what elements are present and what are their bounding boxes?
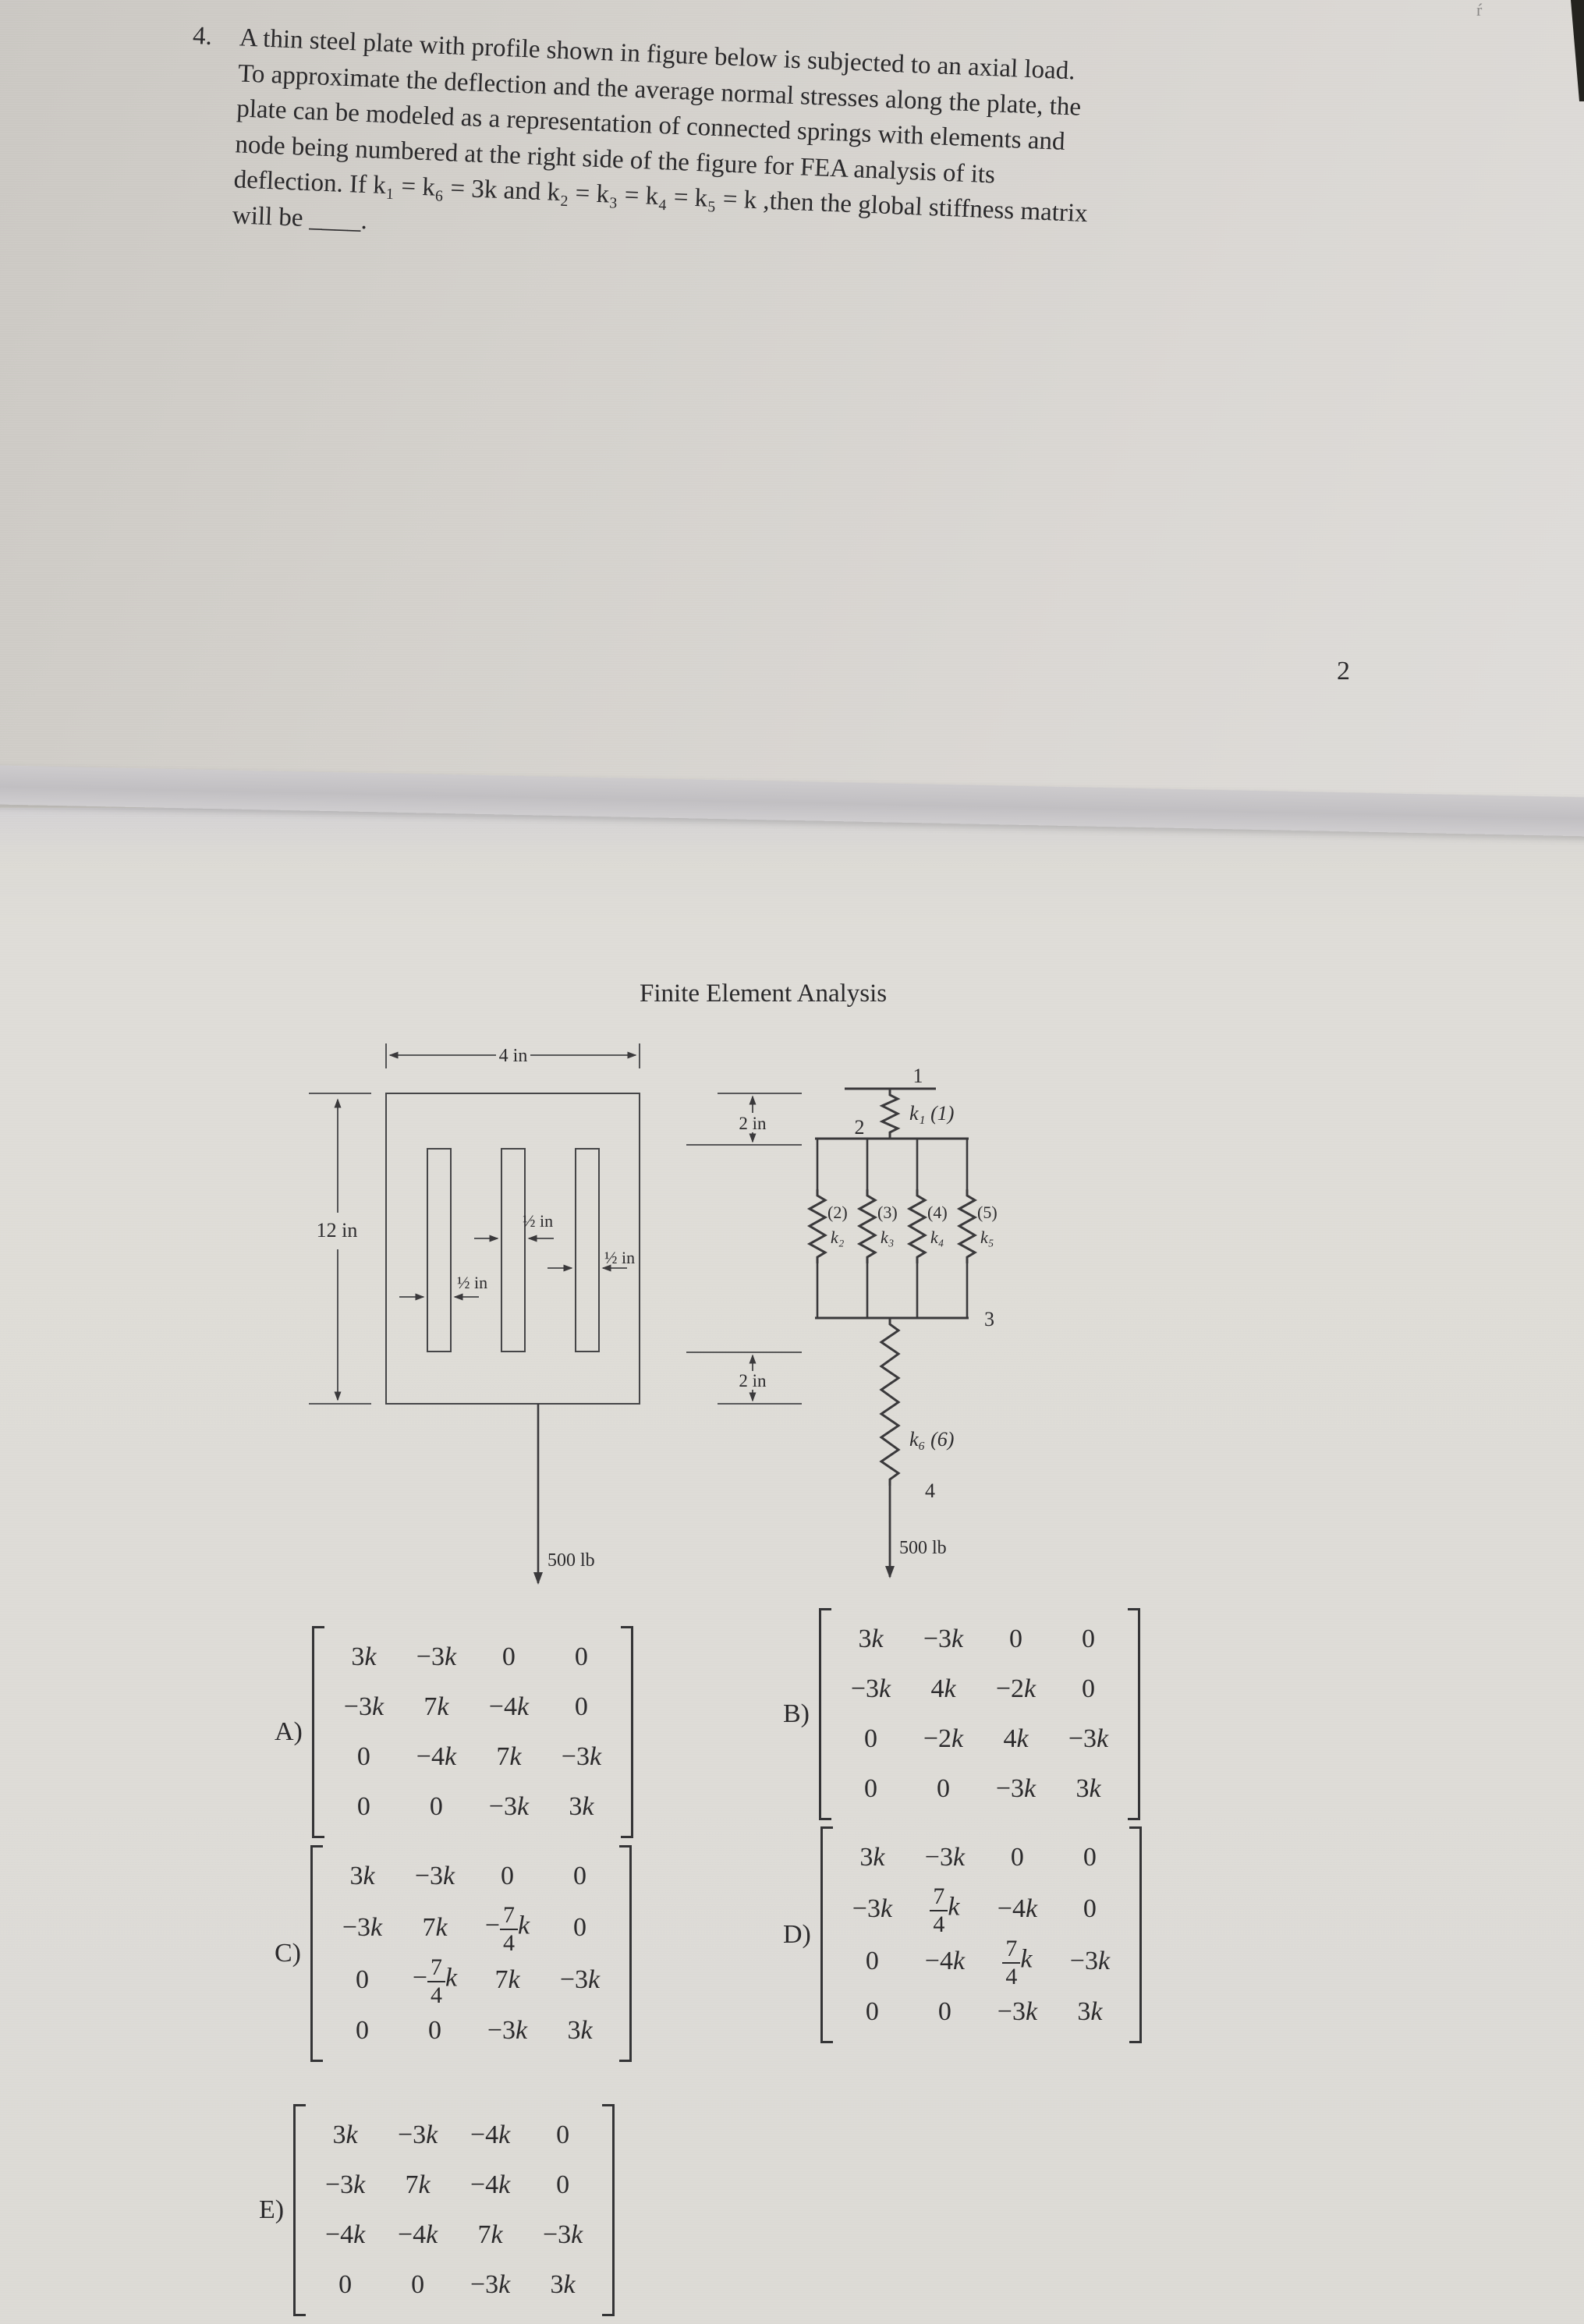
matrix-cell: 3k — [859, 1843, 884, 1872]
option-label: A) — [275, 1717, 303, 1747]
spring-k3-icon — [859, 1189, 875, 1263]
option-label: D) — [783, 1920, 811, 1950]
matrix-bracket-left — [293, 2104, 306, 2316]
matrix-cell: 0 — [864, 1774, 877, 1804]
spring-k4-icon — [909, 1189, 925, 1263]
dim-12in-label: 12 in — [317, 1219, 358, 1242]
matrix-bracket-left — [819, 1608, 831, 1820]
matrix-cell: −3k — [996, 1774, 1036, 1804]
matrix-cell: 3k — [1077, 1997, 1102, 2027]
matrix-cell: 0 — [1009, 1624, 1022, 1654]
matrix-cell: −4k — [398, 2220, 438, 2250]
question-number: 4. — [185, 19, 240, 233]
option-a: A) 3k−3k00−3k7k−4k00−4k7k−3k00−3k3k — [275, 1626, 633, 1838]
spring-model: 1 k₁ (1) 2 (2) k₂ (3) k₃ (4) k₄ — [810, 1065, 998, 1577]
matrix-cell: −4k — [489, 1692, 529, 1722]
stray-pen-mark: ŕ — [1476, 0, 1482, 20]
matrix-cell: −74k — [413, 1954, 457, 2006]
spring-k5-icon — [959, 1189, 975, 1263]
matrix-cell: 7k — [478, 2220, 503, 2250]
matrix-cell: −3k — [398, 2120, 438, 2150]
matrix-cell: 3k — [569, 1792, 594, 1822]
option-b: B) 3k−3k00−3k4k−2k00−2k4k−3k00−3k3k — [783, 1608, 1140, 1820]
matrix-cell: 0 — [575, 1642, 588, 1672]
matrix-grid: 3k−3k00−3k74k−4k00−4k74k−3k00−3k3k — [833, 1826, 1129, 2043]
matrix-grid: 3k−3k00−3k4k−2k00−2k4k−3k00−3k3k — [831, 1608, 1128, 1820]
matrix-bracket-right — [1129, 1826, 1142, 2043]
plate-load-label: 500 lb — [547, 1550, 595, 1571]
matrix-bracket-left — [310, 1845, 323, 2062]
plate-figure — [386, 1093, 640, 1404]
photographed-exam-page: 4. A thin steel plate with profile shown… — [0, 0, 1584, 2324]
dim-2in-bottom-label: 2 in — [739, 1371, 767, 1391]
matrix-cell: −2k — [996, 1674, 1036, 1704]
element-number-2: (2) — [827, 1203, 848, 1222]
spring-k1-icon — [882, 1089, 898, 1139]
matrix-cell: 0 — [556, 2170, 569, 2200]
matrix-cell: 7k — [406, 2170, 431, 2200]
matrix-bracket-left — [820, 1826, 833, 2043]
matrix-cell: −4k — [925, 1947, 965, 1976]
matrix-cell: 0 — [357, 1792, 370, 1822]
matrix-cell: −3k — [1068, 1724, 1108, 1754]
matrix-cell: 74k — [930, 1883, 959, 1935]
plate-slot-1 — [427, 1149, 451, 1352]
matrix-cell: 3k — [1075, 1774, 1100, 1804]
matrix-cell: 7k — [423, 1692, 448, 1722]
plate-slot-3 — [576, 1149, 599, 1352]
matrix-cell: 7k — [494, 1965, 519, 1995]
matrix-cell: −3k — [562, 1742, 601, 1772]
matrix-cell: 0 — [575, 1692, 588, 1722]
matrix-cell: 3k — [351, 1642, 376, 1672]
matrix-cell: 0 — [937, 1774, 950, 1804]
matrix-cell: 0 — [338, 2270, 352, 2300]
plate-outline — [386, 1093, 640, 1404]
matrix-cell: 0 — [502, 1642, 516, 1672]
matrix-cell: 4k — [1003, 1724, 1028, 1754]
matrix-cell: −3k — [415, 1862, 455, 1891]
dim-12in — [309, 1093, 371, 1404]
matrix-cell: 4k — [930, 1674, 955, 1704]
matrix-cell: −3k — [416, 1642, 456, 1672]
matrix-cell: 3k — [333, 2120, 358, 2150]
element-label-k6: k₆ (6) — [909, 1428, 954, 1451]
element-k-label-4: k₄ — [930, 1228, 944, 1247]
spring-load-label: 500 lb — [899, 1538, 947, 1558]
matrix-bracket-right — [621, 1626, 633, 1838]
matrix-cell: −3k — [342, 1913, 382, 1943]
matrix-cell: 3k — [349, 1862, 374, 1891]
element-number-5: (5) — [977, 1203, 998, 1222]
matrix-cell: 0 — [866, 1947, 879, 1976]
matrix-cell: 0 — [556, 2120, 569, 2150]
matrix-cell: 0 — [864, 1724, 877, 1754]
matrix-cell: 0 — [357, 1742, 370, 1772]
matrix-cell: 0 — [1082, 1674, 1095, 1704]
matrix-cell: 0 — [356, 2016, 369, 2046]
element-k-label-5: k₅ — [980, 1228, 994, 1247]
matrix-cell: 0 — [573, 1913, 586, 1943]
option-d: D) 3k−3k00−3k74k−4k00−4k74k−3k00−3k3k — [783, 1826, 1142, 2043]
figure-title: Finite Element Analysis — [640, 980, 887, 1008]
matrix-cell: −3k — [470, 2270, 510, 2300]
spring-k2-icon — [810, 1189, 825, 1263]
matrix-cell: 3k — [858, 1624, 883, 1654]
matrix-cell: −4k — [998, 1894, 1037, 1924]
matrix-cell: −3k — [998, 1997, 1037, 2027]
page-number: 2 — [1337, 657, 1350, 686]
dim-2in-top-label: 2 in — [739, 1114, 767, 1133]
matrix-cell: 7k — [496, 1742, 521, 1772]
matrix-cell: 74k — [1002, 1935, 1032, 1987]
matrix-grid: 3k−3k−4k0−3k7k−4k0−4k−4k7k−3k00−3k3k — [306, 2104, 602, 2316]
node-label-1: 1 — [913, 1065, 923, 1087]
matrix-cell: −3k — [560, 1965, 600, 1995]
element-k-label-3: k₃ — [881, 1228, 894, 1247]
matrix-grid: 3k−3k00−3k7k−74k00−74k7k−3k00−3k3k — [323, 1845, 619, 2062]
matrix-cell: 0 — [1011, 1843, 1024, 1872]
matrix-cell: −2k — [923, 1724, 963, 1754]
matrix-cell: −3k — [325, 2170, 365, 2200]
fea-figure: 4 in 12 in ½ in ½ in ½ in 2 in — [296, 1037, 1092, 1607]
element-number-3: (3) — [877, 1203, 898, 1222]
matrix-cell: −3k — [923, 1624, 963, 1654]
slot-width-label-3: ½ in — [604, 1248, 635, 1267]
element-k-label-2: k₂ — [831, 1228, 845, 1247]
matrix-bracket-left — [312, 1626, 324, 1838]
matrix-cell: 0 — [411, 2270, 424, 2300]
matrix-cell: −4k — [416, 1742, 456, 1772]
slot-width-arrows — [399, 1238, 627, 1297]
matrix-cell: 0 — [428, 2016, 441, 2046]
matrix-cell: 0 — [1083, 1843, 1097, 1872]
option-e: E) 3k−3k−4k0−3k7k−4k0−4k−4k7k−3k00−3k3k — [259, 2104, 615, 2316]
plate-slot-2 — [501, 1149, 525, 1352]
matrix-cell: 3k — [551, 2270, 576, 2300]
node-label-4: 4 — [925, 1479, 935, 1502]
node-label-2: 2 — [855, 1116, 865, 1139]
dim-4in-label: 4 in — [499, 1046, 528, 1066]
matrix-cell: −74k — [485, 1901, 530, 1954]
matrix-cell: −3k — [543, 2220, 583, 2250]
matrix-bracket-right — [1128, 1608, 1140, 1820]
spring-k6-icon — [881, 1318, 898, 1486]
matrix-cell: −3k — [851, 1674, 891, 1704]
matrix-cell: −3k — [925, 1843, 965, 1872]
matrix-bracket-right — [619, 1845, 632, 2062]
matrix-cell: −3k — [489, 1792, 529, 1822]
matrix-cell: −3k — [487, 2016, 527, 2046]
matrix-bracket-right — [602, 2104, 615, 2316]
option-label: E) — [259, 2195, 284, 2225]
matrix-cell: 0 — [1083, 1894, 1097, 1924]
matrix-cell: 0 — [430, 1792, 443, 1822]
matrix-cell: −4k — [325, 2220, 365, 2250]
matrix-cell: −3k — [344, 1692, 384, 1722]
option-label: B) — [783, 1699, 810, 1729]
matrix-cell: 0 — [866, 1997, 879, 2027]
matrix-grid: 3k−3k00−3k7k−4k00−4k7k−3k00−3k3k — [324, 1626, 621, 1838]
option-label: C) — [275, 1939, 301, 1968]
matrix-cell: 0 — [938, 1997, 951, 2027]
matrix-cell: 0 — [573, 1862, 586, 1891]
element-label-k1: k₁ (1) — [909, 1102, 954, 1125]
slot-width-label-1: ½ in — [457, 1273, 487, 1292]
matrix-cell: 3k — [567, 2016, 592, 2046]
matrix-cell: 0 — [501, 1862, 514, 1891]
node-label-3: 3 — [984, 1308, 994, 1330]
matrix-cell: 0 — [356, 1965, 369, 1995]
matrix-cell: −4k — [470, 2170, 510, 2200]
slot-width-label-2: ½ in — [523, 1211, 553, 1231]
option-c: C) 3k−3k00−3k7k−74k00−74k7k−3k00−3k3k — [275, 1845, 632, 2062]
matrix-cell: 0 — [1082, 1624, 1095, 1654]
matrix-cell: 7k — [422, 1913, 447, 1943]
matrix-cell: −3k — [1070, 1947, 1110, 1976]
matrix-cell: −3k — [852, 1894, 892, 1924]
element-number-4: (4) — [927, 1203, 948, 1222]
matrix-cell: −4k — [470, 2120, 510, 2150]
